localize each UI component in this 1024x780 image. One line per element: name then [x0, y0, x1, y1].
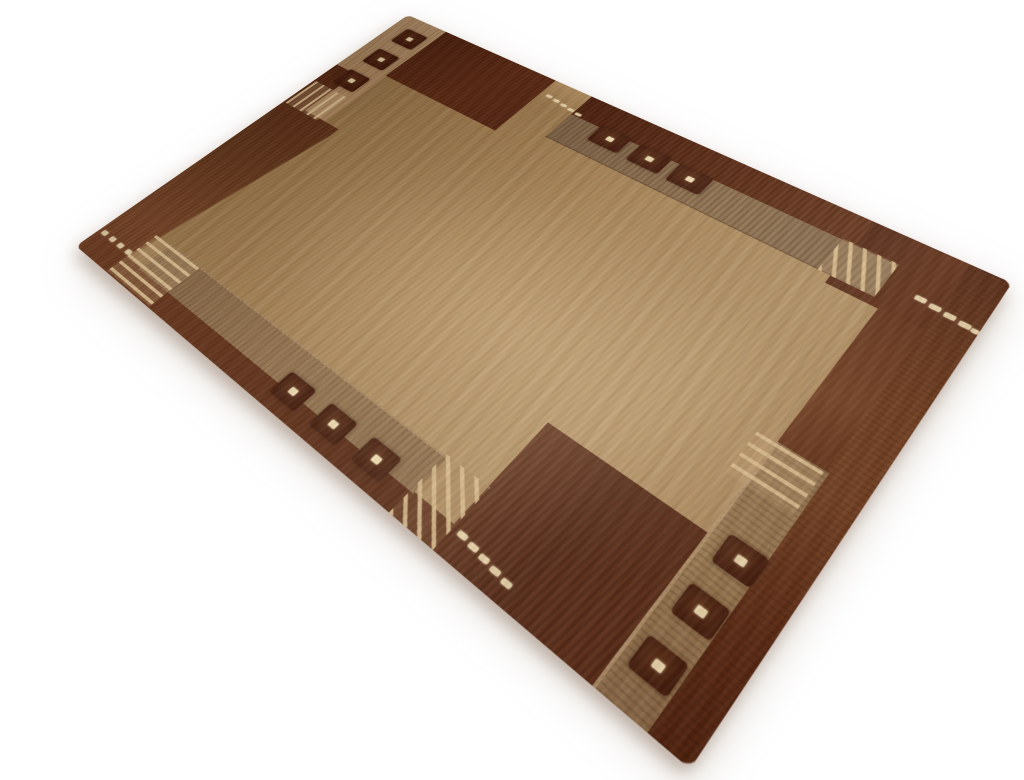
rug — [76, 15, 1012, 769]
square-motif — [626, 634, 689, 698]
square-center-dot — [327, 419, 339, 430]
square-center-dot — [377, 57, 385, 62]
accent-dot — [560, 103, 568, 108]
accent-dot — [928, 303, 942, 313]
square-motif — [625, 144, 673, 174]
square-motif — [665, 164, 714, 196]
accent-dot — [943, 312, 958, 322]
accent-dot — [567, 108, 575, 113]
square-motif — [308, 403, 358, 446]
square-center-dot — [693, 604, 708, 619]
square-center-dot — [650, 657, 666, 673]
square-center-dot — [684, 176, 695, 183]
rug-shadow-wrap — [0, 0, 1024, 780]
square-motif — [670, 582, 731, 641]
accent-dot — [552, 99, 560, 104]
accent-dot — [101, 230, 110, 237]
accent-dot — [488, 565, 502, 578]
square-center-dot — [287, 386, 299, 396]
square-center-dot — [405, 37, 413, 42]
square-motif — [269, 371, 317, 412]
square-center-dot — [347, 78, 356, 83]
square-motif — [332, 69, 370, 92]
square-center-dot — [605, 136, 615, 142]
accent-dot — [574, 112, 582, 117]
square-motif — [350, 437, 402, 483]
accent-dot — [124, 249, 133, 256]
square-motif — [391, 29, 428, 50]
square-motif — [362, 48, 400, 70]
accent-dot — [545, 94, 553, 98]
accent-dot — [500, 577, 514, 590]
accent-dot — [477, 553, 490, 565]
square-motif — [711, 533, 771, 588]
square-center-dot — [370, 454, 383, 465]
accent-dot — [116, 242, 125, 249]
accent-dot — [957, 320, 972, 330]
photo-stage — [0, 0, 1024, 780]
accent-dot — [467, 541, 480, 553]
square-motif — [587, 125, 633, 154]
accent-dot — [456, 530, 469, 542]
accent-dot — [914, 295, 928, 305]
square-center-dot — [733, 554, 748, 568]
accent-dot — [108, 236, 117, 243]
accent-dot — [970, 328, 980, 335]
motifs-layer — [76, 15, 1012, 769]
square-center-dot — [644, 156, 654, 163]
